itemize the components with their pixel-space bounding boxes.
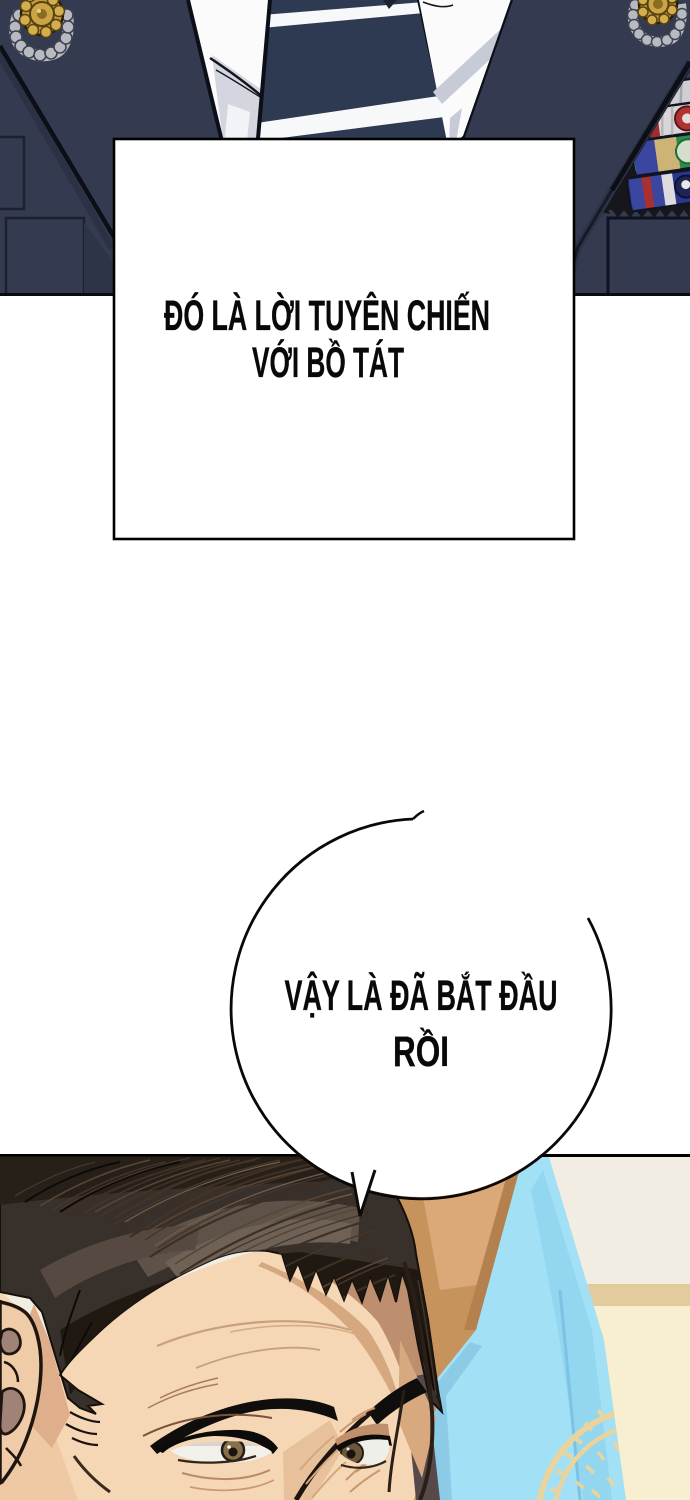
svg-text:VỚI BỒ TÁT: VỚI BỒ TÁT bbox=[252, 338, 404, 387]
svg-text:ĐÓ LÀ LỜI TUYÊN CHIẾN: ĐÓ LÀ LỜI TUYÊN CHIẾN bbox=[164, 291, 490, 340]
svg-text:RỒI: RỒI bbox=[393, 1027, 449, 1076]
svg-text:VẬY LÀ ĐÃ BẮT ĐẦU: VẬY LÀ ĐÃ BẮT ĐẦU bbox=[285, 971, 558, 1020]
